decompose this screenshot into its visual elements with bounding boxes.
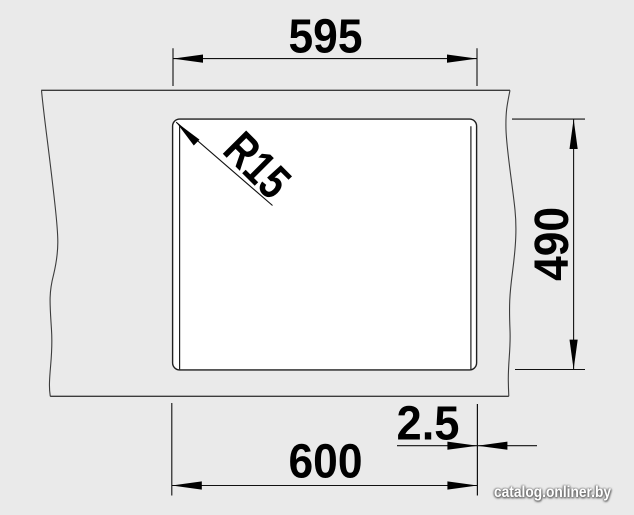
svg-text:490: 490 (526, 207, 579, 281)
svg-text:595: 595 (289, 11, 363, 64)
svg-text:600: 600 (289, 435, 363, 488)
svg-text:2.5: 2.5 (397, 398, 460, 451)
svg-text:catalog.onliner.by: catalog.onliner.by (494, 484, 611, 501)
